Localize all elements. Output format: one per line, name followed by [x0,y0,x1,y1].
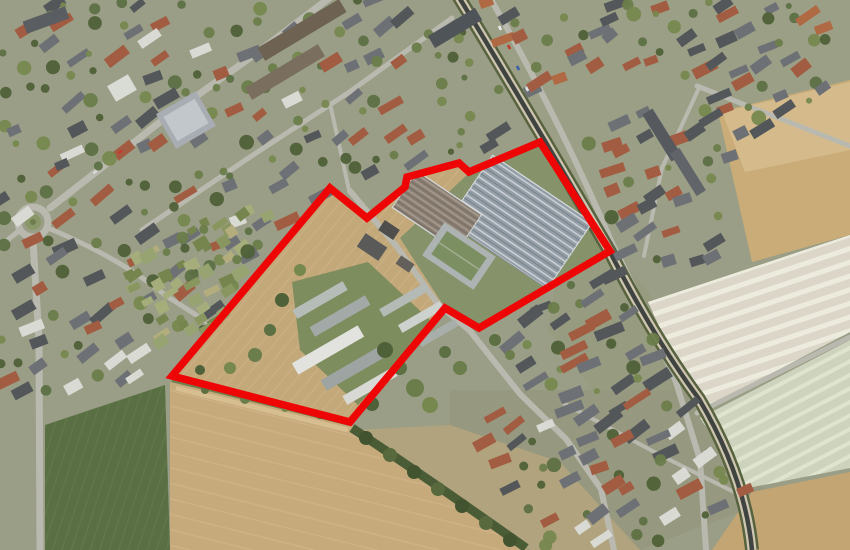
hedge-tree [431,482,445,496]
tree [567,281,575,289]
tree [120,21,128,29]
tree [230,25,242,37]
tree [118,244,131,257]
tree [94,162,103,171]
tree [626,360,640,374]
tree [578,30,588,40]
hedge-tree [359,431,373,445]
tree [582,136,596,150]
tree [668,20,681,33]
tree [193,70,202,79]
tree [226,172,233,179]
tree [655,454,667,466]
tree [126,179,133,186]
tree [820,34,831,45]
tree [537,481,545,489]
tree [177,0,185,8]
tree [194,170,203,179]
tree [140,91,152,103]
tree [294,264,306,276]
tree [713,144,721,152]
hedge-tree [407,465,421,479]
hedge-tree [383,448,397,462]
tree [240,244,255,259]
tree [180,244,189,253]
tree [411,42,421,52]
tree [461,75,467,81]
tree [195,365,205,375]
tree [290,143,303,156]
tree [786,3,792,9]
tree [489,334,501,346]
tree [12,140,19,147]
tree [293,116,303,126]
tree [808,34,821,47]
tree [714,212,723,221]
tree [560,13,568,21]
tree [210,192,224,206]
tree [606,339,616,349]
tree [17,61,31,75]
tree [367,95,380,108]
tree [652,535,665,548]
tree [762,12,774,24]
tree [321,100,329,108]
tree [435,52,442,59]
tree [656,48,664,56]
tree [626,7,641,22]
tree [371,56,382,67]
tree [358,36,369,47]
tree [439,346,451,358]
tree [220,168,228,176]
tree [96,114,104,122]
tree [140,180,150,190]
tree [213,84,221,92]
tree [334,26,345,37]
tree [88,16,102,30]
tree [661,400,672,411]
tree [239,135,254,150]
tree [163,248,171,256]
tree [689,9,698,18]
tree [264,324,276,336]
tree [372,156,380,164]
tree [653,11,659,17]
tree [539,464,547,472]
tree [457,128,464,135]
tree [719,475,729,485]
tree [224,362,236,374]
tree [91,238,102,249]
tree [253,2,267,16]
tree [275,293,289,307]
roundabout-center [30,219,36,225]
tree [522,340,531,349]
tree [653,255,661,263]
tree [253,17,262,26]
tree [181,88,190,97]
tree [604,210,618,224]
tree [406,379,424,397]
tree [510,18,519,27]
tree [456,142,463,149]
tree [631,529,642,540]
tree [25,191,37,203]
tree [169,180,182,193]
tree [141,209,148,216]
tree [68,197,77,206]
tree [169,202,179,212]
tree [623,177,634,188]
tree [680,71,689,80]
tree [340,153,351,164]
tree [17,175,25,183]
hedge-tree [503,533,517,547]
tree [85,142,99,156]
tree [548,302,560,314]
tree [86,51,92,57]
tree [46,60,60,74]
tree [89,3,100,14]
tree [646,477,660,491]
tree [757,81,768,92]
tree [390,151,399,160]
tree [302,126,308,132]
tree [349,161,362,174]
tree [204,27,215,38]
tree [299,87,305,93]
tree [806,98,812,104]
tree [448,149,454,155]
tree [465,111,476,122]
tree [505,350,515,360]
tree [318,157,328,167]
tree [60,350,68,358]
tree [494,85,503,94]
tree [541,34,553,46]
tree [745,103,753,111]
tree [706,173,716,183]
tree [269,155,276,162]
hedge-tree [479,516,493,530]
tree [639,517,648,526]
tree [646,333,659,346]
tree [66,71,75,80]
tree [437,97,447,107]
hedge-tree [455,499,469,513]
tree [528,438,536,446]
tree [245,227,253,235]
tree [41,84,50,93]
tree [447,52,458,63]
tree [56,265,70,279]
tree [168,75,182,89]
tree [524,504,533,513]
tree [89,67,96,74]
tree [0,87,12,99]
tree [92,369,104,381]
tree [13,358,22,367]
aerial-screenshot-root [0,0,850,550]
tree [633,374,642,383]
tree [775,39,783,47]
tree [422,397,438,413]
tree [465,58,474,67]
tree [143,313,154,324]
tree [232,255,241,264]
tree [176,232,188,244]
tree [214,254,225,265]
tree [48,310,59,321]
tree [226,75,234,83]
tree [74,341,83,350]
tree [36,136,50,150]
tree [199,225,208,234]
tree [359,107,367,115]
tree [531,62,542,73]
tree [377,342,393,358]
tree [436,78,448,90]
tree [178,214,191,227]
tree [453,361,467,375]
tree [703,156,714,167]
tree [665,165,671,171]
tree [547,458,561,472]
tree [248,348,262,362]
tree [26,82,34,90]
tree [31,40,38,47]
aerial-photo [0,0,850,550]
tree [545,378,558,391]
tree [594,388,600,394]
tree [702,511,709,518]
tree [102,151,117,166]
tree [83,93,97,107]
tree [40,185,53,198]
tree [543,530,557,544]
tree [519,462,528,471]
tree [43,236,54,247]
tree [638,37,647,46]
tree [41,385,52,396]
